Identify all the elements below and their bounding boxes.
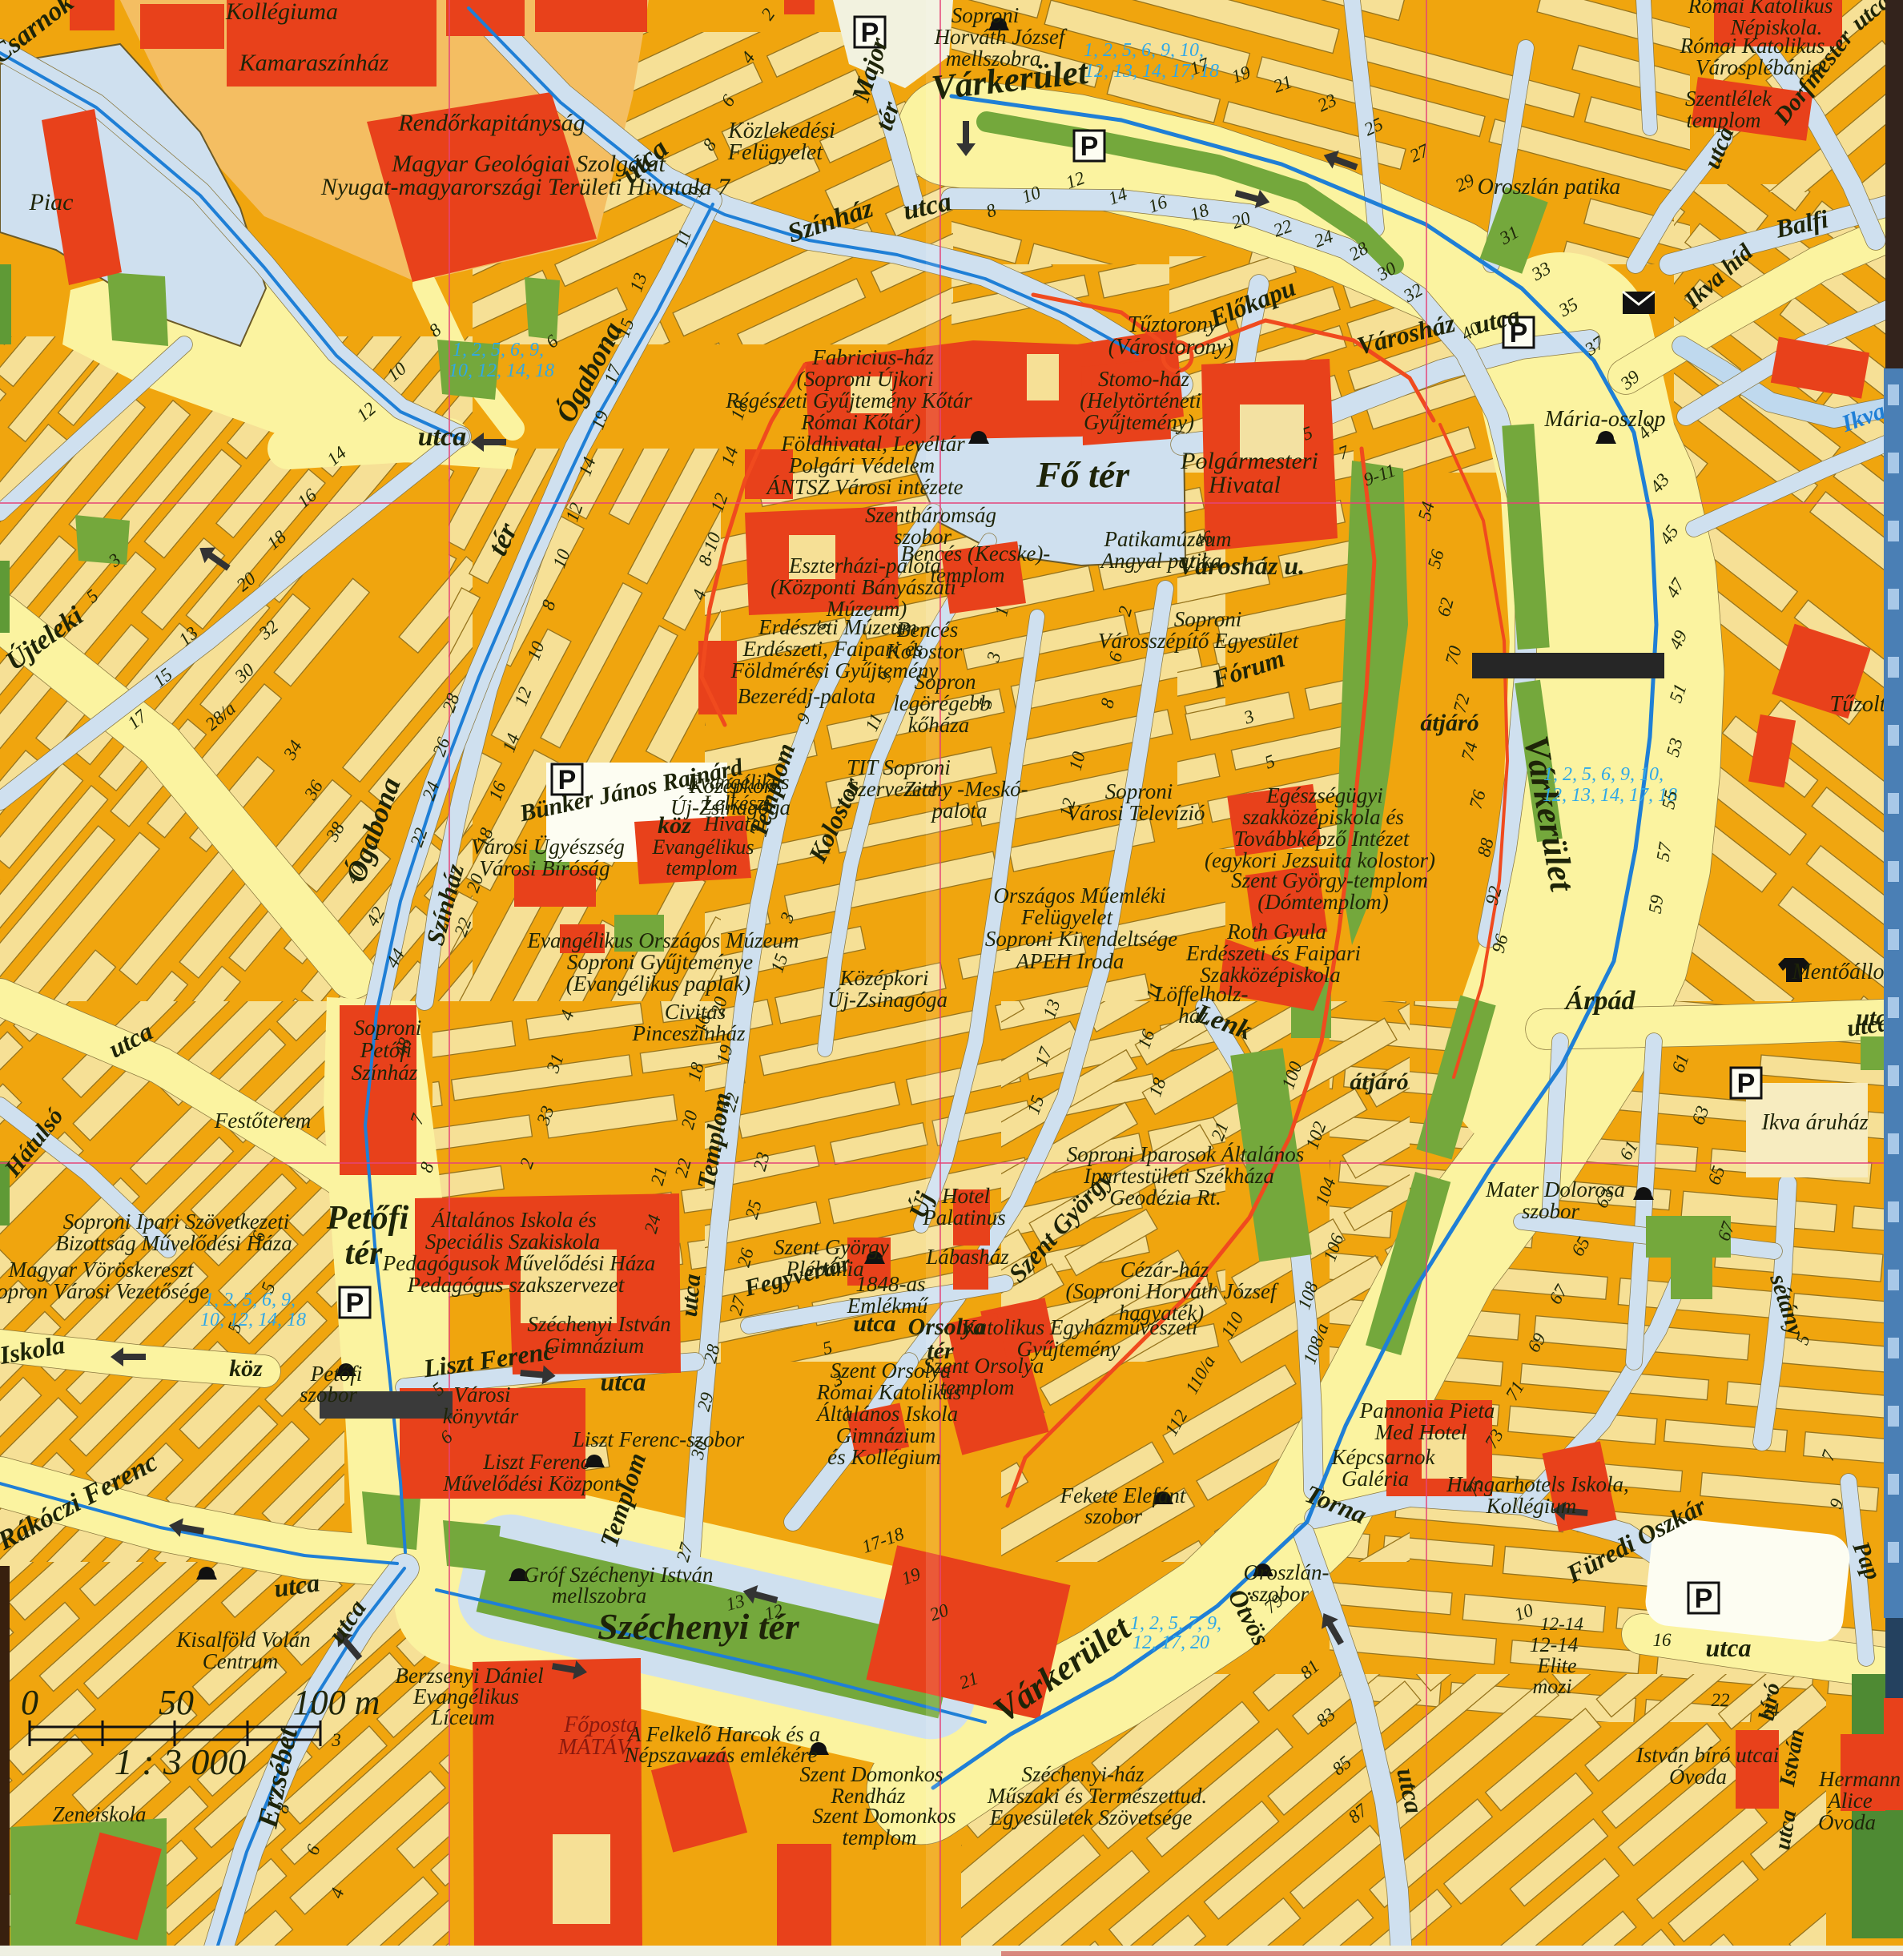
svg-text:Kisalföld Volán: Kisalföld Volán — [175, 1628, 310, 1652]
svg-text:Soproni Ipari Szövetkezeti: Soproni Ipari Szövetkezeti — [63, 1209, 289, 1234]
svg-text:Óvoda: Óvoda — [1669, 1765, 1727, 1789]
svg-text:palota: palota — [930, 799, 987, 823]
svg-text:Országos Műemléki: Országos Műemléki — [993, 883, 1165, 908]
svg-text:Erdészeti és Faipari: Erdészeti és Faipari — [1185, 941, 1361, 965]
svg-text:Hermann: Hermann — [1818, 1767, 1901, 1791]
svg-text:István bíró utcai: István bíró utcai — [1635, 1743, 1779, 1767]
svg-text:Felügyelet: Felügyelet — [727, 140, 823, 165]
svg-text:tér: tér — [927, 1338, 954, 1364]
svg-text:Soproni: Soproni — [1174, 607, 1242, 631]
svg-text:TIT Soproni: TIT Soproni — [847, 755, 951, 779]
svg-text:Magyar Vöröskereszt: Magyar Vöröskereszt — [8, 1258, 195, 1282]
svg-text:Szervezete: Szervezete — [847, 777, 937, 801]
svg-text:1, 2, 5, 6, 9, 10,: 1, 2, 5, 6, 9, 10, — [1543, 764, 1664, 785]
svg-text:Széchenyi István: Széchenyi István — [527, 1312, 670, 1336]
svg-text:Képcsarnok: Képcsarnok — [1331, 1445, 1436, 1469]
svg-text:P: P — [1080, 131, 1099, 162]
svg-text:Árpád: Árpád — [1564, 986, 1636, 1016]
svg-text:Sopron Városi Vezetősége: Sopron Városi Vezetősége — [0, 1279, 209, 1303]
svg-text:Földhivatal, Levéltár: Földhivatal, Levéltár — [780, 432, 965, 456]
svg-text:mozi: mozi — [1532, 1675, 1571, 1698]
svg-text:Soproni Gyűjteménye: Soproni Gyűjteménye — [567, 950, 753, 974]
svg-text:(Soproni Horváth József: (Soproni Horváth József — [1066, 1279, 1279, 1303]
svg-text:templom: templom — [666, 856, 738, 879]
svg-text:Szentlélek: Szentlélek — [1685, 87, 1772, 111]
svg-text:Óvoda: Óvoda — [1818, 1810, 1876, 1834]
svg-text:templom: templom — [843, 1825, 917, 1849]
svg-text:Középkori: Középkori — [689, 774, 778, 798]
svg-text:P: P — [1695, 1584, 1713, 1614]
svg-text:1, 2, 5, 6, 9,: 1, 2, 5, 6, 9, — [453, 340, 544, 360]
svg-text:(Központi Bányászati: (Központi Bányászati — [770, 575, 956, 599]
svg-text:Palatinus: Palatinus — [922, 1205, 1006, 1230]
svg-text:Városi Televízió: Városi Televízió — [1067, 801, 1205, 825]
svg-text:kőháza: kőháza — [908, 713, 970, 737]
svg-text:0: 0 — [21, 1683, 38, 1722]
svg-text:Gyűjtemény): Gyűjtemény) — [1084, 410, 1194, 434]
svg-text:(Helytörténeti: (Helytörténeti — [1080, 388, 1201, 413]
svg-text:utca: utca — [676, 1273, 706, 1318]
svg-text:Pedagógusok Művelődési Háza: Pedagógusok Művelődési Háza — [382, 1251, 655, 1275]
svg-text:Művelődési Központ: Művelődési Központ — [442, 1471, 622, 1495]
svg-text:Petőfi: Petőfi — [326, 1200, 409, 1237]
svg-text:10, 12, 14, 18: 10, 12, 14, 18 — [200, 1310, 306, 1330]
svg-text:Felügyelet: Felügyelet — [1020, 905, 1113, 929]
svg-text:1, 2, 5, 6, 9, 10,: 1, 2, 5, 6, 9, 10, — [1084, 40, 1204, 61]
svg-text:szobor: szobor — [1084, 1504, 1143, 1528]
svg-text:Alice: Alice — [1826, 1789, 1872, 1813]
svg-text:Városház u.: Városház u. — [1178, 551, 1305, 580]
svg-text:100 m: 100 m — [293, 1683, 380, 1722]
svg-text:utca: utca — [601, 1367, 646, 1396]
svg-text:Galéria: Galéria — [1342, 1467, 1409, 1491]
svg-text:Polgármesteri: Polgármesteri — [1180, 448, 1318, 474]
svg-text:Geodézia Rt.: Geodézia Rt. — [1109, 1185, 1221, 1209]
svg-text:Régészeti Gyűjtemény Kőtár: Régészeti Gyűjtemény Kőtár — [725, 388, 972, 413]
svg-text:P: P — [1737, 1069, 1756, 1099]
svg-text:Ikva áruház: Ikva áruház — [1761, 1110, 1869, 1135]
svg-text:tér: tér — [345, 1235, 383, 1272]
svg-text:Liszt Ferenc-szobor: Liszt Ferenc-szobor — [572, 1427, 745, 1451]
svg-text:Speciális Szakiskola: Speciális Szakiskola — [425, 1230, 600, 1254]
svg-text:Bezerédj-palota: Bezerédj-palota — [738, 684, 875, 708]
svg-text:(Dómtemplom): (Dómtemplom) — [1257, 890, 1388, 914]
svg-text:Egyesületek Szövetsége: Egyesületek Szövetsége — [989, 1805, 1193, 1829]
svg-text:1, 2, 5, 6, 9,: 1, 2, 5, 6, 9, — [204, 1290, 296, 1310]
svg-text:1 : 3 000: 1 : 3 000 — [115, 1741, 247, 1782]
svg-text:Széchenyi-ház: Széchenyi-ház — [1022, 1762, 1145, 1786]
svg-text:Kollégiuma: Kollégiuma — [225, 0, 338, 25]
svg-text:utca: utca — [853, 1310, 895, 1337]
svg-text:Fő tér: Fő tér — [1036, 454, 1130, 495]
svg-text:átjáró: átjáró — [1420, 710, 1479, 736]
svg-text:Pannonia Pieta: Pannonia Pieta — [1359, 1399, 1495, 1423]
svg-text:1, 2, 5, 7, 9,: 1, 2, 5, 7, 9, — [1130, 1613, 1221, 1634]
svg-text:Nyugat-magyarországi Területi: Nyugat-magyarországi Területi Hivatala 7 — [320, 174, 731, 200]
svg-text:Gimnázium: Gimnázium — [545, 1334, 645, 1358]
svg-text:Katolikus Egyházművészeti: Katolikus Egyházművészeti — [961, 1315, 1198, 1339]
svg-text:Tűztorony: Tűztorony — [1128, 312, 1218, 337]
svg-text:3: 3 — [331, 1730, 341, 1750]
svg-text:Kolostor: Kolostor — [886, 639, 963, 663]
svg-text:mellszobra: mellszobra — [946, 46, 1041, 70]
svg-text:templom: templom — [931, 563, 1005, 587]
svg-text:Zeneiskola: Zeneiskola — [53, 1802, 147, 1826]
svg-text:12-14: 12-14 — [1530, 1633, 1579, 1656]
svg-text:Új-Zsinagóga: Új-Zsinagóga — [827, 988, 947, 1012]
svg-text:Roth Gyula: Roth Gyula — [1226, 920, 1326, 944]
svg-text:és Kollégium: és Kollégium — [827, 1445, 941, 1469]
svg-text:Líceum: Líceum — [430, 1705, 494, 1729]
svg-text:24: 24 — [1761, 1700, 1780, 1720]
svg-text:Evangélikus Országos Múzeum: Evangélikus Országos Múzeum — [527, 928, 799, 952]
svg-text:Pinceszínház: Pinceszínház — [632, 1021, 746, 1045]
svg-text:Fabricius-ház: Fabricius-ház — [811, 345, 934, 369]
svg-text:utca: utca — [418, 422, 466, 452]
svg-text:Oroszlán patika: Oroszlán patika — [1478, 175, 1621, 199]
svg-text:könyvtár: könyvtár — [443, 1404, 519, 1428]
svg-text:Rendőrkapitányság: Rendőrkapitányság — [397, 110, 585, 136]
svg-text:Stomo-ház: Stomo-ház — [1098, 367, 1189, 391]
svg-text:Gimnázium: Gimnázium — [836, 1423, 936, 1447]
svg-text:Szent Domonkos: Szent Domonkos — [799, 1762, 943, 1786]
svg-text:1: 1 — [308, 1696, 317, 1717]
svg-text:APEH Iroda: APEH Iroda — [1015, 949, 1124, 973]
svg-text:Liszt Ferenc: Liszt Ferenc — [482, 1450, 589, 1474]
svg-text:59: 59 — [1645, 893, 1668, 915]
svg-text:Mentőállo: Mentőállo — [1791, 960, 1884, 984]
svg-text:szobor: szobor — [300, 1382, 358, 1407]
svg-text:Med Hotel: Med Hotel — [1374, 1420, 1467, 1444]
svg-text:Kamaraszínház: Kamaraszínház — [239, 50, 389, 76]
svg-text:Soproni: Soproni — [354, 1016, 422, 1040]
svg-text:(Várostorony): (Várostorony) — [1108, 335, 1234, 360]
svg-text:átjáró: átjáró — [1350, 1069, 1408, 1095]
svg-text:Polgári Védelem: Polgári Védelem — [788, 453, 935, 477]
svg-text:Soproni Kirendeltsége: Soproni Kirendeltsége — [985, 927, 1177, 951]
svg-text:Római Katolikus: Római Katolikus — [1680, 34, 1825, 58]
svg-text:Bencés (Kecske)-: Bencés (Kecske)- — [901, 541, 1051, 565]
svg-text:Műszaki és Természettud.: Műszaki és Természettud. — [987, 1784, 1207, 1808]
svg-text:Általános Iskola: Általános Iskola — [815, 1402, 958, 1426]
svg-text:Lábasház: Lábasház — [925, 1245, 1009, 1269]
svg-text:Orsolya: Orsolya — [908, 1314, 986, 1340]
svg-text:12, 17, 20: 12, 17, 20 — [1133, 1632, 1209, 1653]
svg-text:Elite: Elite — [1536, 1654, 1576, 1677]
svg-text:Festőterem: Festőterem — [214, 1109, 311, 1133]
svg-text:Városi Bíróság: Városi Bíróság — [479, 856, 610, 880]
svg-text:Soproni: Soproni — [951, 3, 1020, 27]
svg-text:Városi: Városi — [453, 1382, 510, 1407]
svg-text:Hivatal: Hivatal — [1208, 472, 1281, 498]
svg-text:Népszavazás emlékére: Népszavazás emlékére — [623, 1743, 817, 1767]
svg-text:Cézár-ház: Cézár-ház — [1120, 1258, 1209, 1282]
svg-text:utca: utca — [1706, 1633, 1752, 1662]
svg-text:50: 50 — [159, 1683, 194, 1722]
svg-text:Szentháromság: Szentháromság — [865, 503, 996, 527]
svg-text:ÁNTSZ Városi intézete: ÁNTSZ Városi intézete — [765, 475, 963, 499]
svg-text:Középkori: Középkori — [839, 966, 929, 990]
svg-text:MÁTÁV: MÁTÁV — [557, 1735, 633, 1760]
svg-text:Horváth József: Horváth József — [934, 25, 1068, 49]
svg-text:szobor: szobor — [1522, 1199, 1580, 1223]
svg-text:Szent György-templom: Szent György-templom — [1231, 868, 1428, 892]
svg-text:Sopron: Sopron — [914, 670, 976, 694]
svg-text:Piac: Piac — [29, 189, 74, 215]
svg-text:Egészségügyi: Egészségügyi — [1265, 783, 1382, 807]
svg-text:köz: köz — [229, 1355, 263, 1382]
svg-text:mellszobra: mellszobra — [552, 1584, 647, 1608]
svg-text:Színház: Színház — [352, 1060, 418, 1085]
svg-text:Hotel: Hotel — [941, 1184, 990, 1208]
svg-text:Szent Domonkos: Szent Domonkos — [812, 1804, 956, 1828]
svg-text:szakközépiskola és: szakközépiskola és — [1242, 805, 1404, 829]
svg-text:Centrum: Centrum — [203, 1649, 279, 1673]
svg-text:12, 13, 14, 17, 18: 12, 13, 14, 17, 18 — [1543, 785, 1677, 806]
svg-text:Soproni Iparosok Általános: Soproni Iparosok Általános — [1067, 1142, 1305, 1166]
svg-text:22: 22 — [1712, 1690, 1730, 1710]
svg-text:Továbbképző Intézet: Továbbképző Intézet — [1234, 827, 1410, 851]
svg-text:Általános Iskola és: Általános Iskola és — [430, 1208, 596, 1232]
svg-text:10, 12, 14, 18: 10, 12, 14, 18 — [449, 360, 554, 381]
svg-text:Oroszlán-: Oroszlán- — [1243, 1560, 1329, 1584]
svg-text:Evangélikus: Evangélikus — [651, 835, 754, 859]
svg-text:Római Kőtár): Római Kőtár) — [800, 410, 920, 434]
svg-text:1848-as: 1848-as — [856, 1272, 926, 1296]
svg-text:16: 16 — [1653, 1630, 1672, 1650]
svg-text:Soproni: Soproni — [1105, 779, 1173, 803]
svg-text:(Evangélikus paplak): (Evangélikus paplak) — [566, 972, 750, 996]
svg-text:Új-Zsinagóga: Új-Zsinagóga — [670, 795, 791, 819]
svg-text:templom: templom — [940, 1375, 1015, 1399]
svg-text:Főposta: Főposta — [563, 1712, 638, 1737]
svg-text:P: P — [346, 1288, 364, 1318]
svg-text:12-14: 12-14 — [1540, 1614, 1583, 1634]
svg-text:Kollégium: Kollégium — [1486, 1494, 1577, 1518]
svg-text:(Soproni Újkori: (Soproni Újkori — [797, 367, 934, 391]
svg-text:Pedagógus szakszervezet: Pedagógus szakszervezet — [407, 1273, 626, 1297]
